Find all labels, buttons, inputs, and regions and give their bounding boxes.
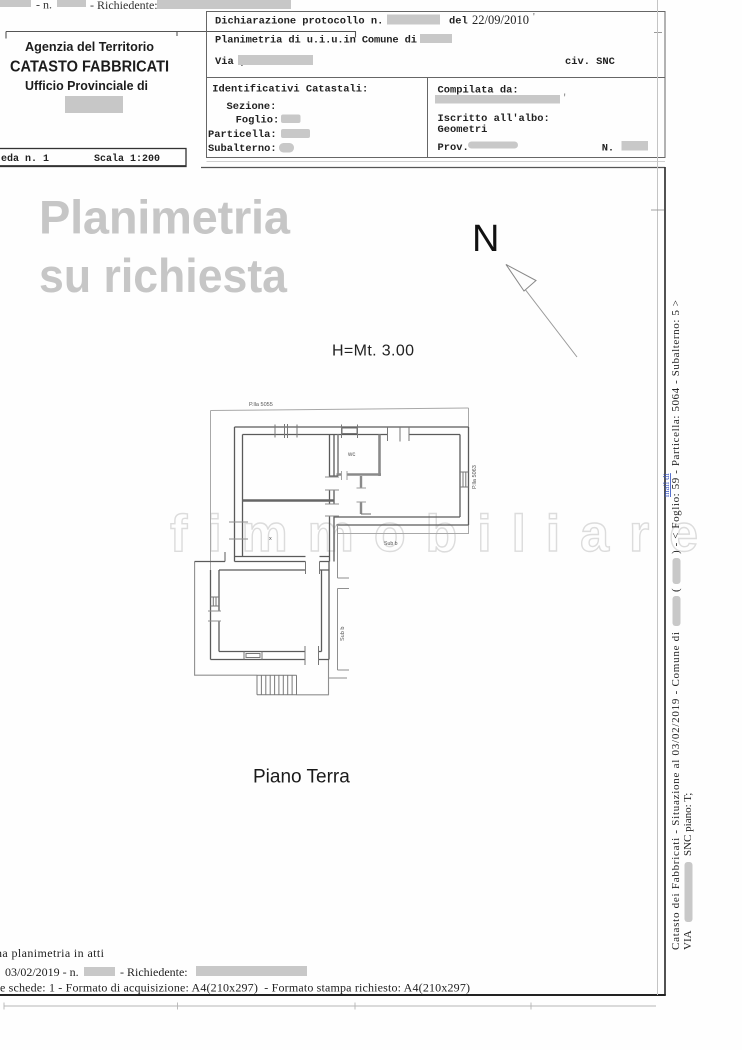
svg-text:mail di: mail di bbox=[661, 473, 671, 497]
svg-text:Dichiarazione protocollo n.: Dichiarazione protocollo n. bbox=[215, 16, 383, 28]
svg-text:x: x bbox=[269, 536, 272, 542]
svg-text:SNC piano: T;: SNC piano: T; bbox=[682, 793, 694, 856]
svg-text:Catasto dei Fabbricati - Situa: Catasto dei Fabbricati - Situazione al 0… bbox=[670, 632, 682, 950]
svg-text:Identificativi Catastali:: Identificativi Catastali: bbox=[212, 84, 368, 96]
svg-text:CATASTO FABBRICATI: CATASTO FABBRICATI bbox=[10, 59, 169, 76]
svg-text:- n.: - n. bbox=[36, 0, 52, 12]
svg-text:- Richiedente:: - Richiedente: bbox=[120, 965, 188, 979]
svg-text:': ' bbox=[533, 12, 535, 23]
svg-text:Compilata da:: Compilata da: bbox=[438, 85, 519, 97]
svg-text:N.: N. bbox=[602, 143, 614, 155]
svg-text:Planimetria di u.i.u.in Comune: Planimetria di u.i.u.in Comune di bbox=[215, 35, 417, 47]
svg-text:) - < Foglio: 59 - Particella:: ) - < Foglio: 59 - Particella: 5064 - Su… bbox=[670, 300, 682, 554]
svg-text:Planimetria: Planimetria bbox=[39, 191, 291, 244]
svg-text:- Richiedente:: - Richiedente: bbox=[90, 0, 158, 12]
svg-text:Piano Terra: Piano Terra bbox=[253, 767, 350, 788]
svg-text:Sezione:: Sezione: bbox=[227, 101, 277, 113]
svg-text:e schede: 1 - Formato di acqui: e schede: 1 - Formato di acquisizione: A… bbox=[0, 981, 470, 995]
svg-text:Subalterno:: Subalterno: bbox=[208, 143, 277, 155]
svg-text:Geometri: Geometri bbox=[438, 124, 488, 136]
svg-text:': ' bbox=[562, 93, 567, 103]
svg-text:Foglio:: Foglio: bbox=[236, 115, 280, 127]
svg-text:na planimetria in atti: na planimetria in atti bbox=[0, 946, 105, 960]
svg-text:Particella:: Particella: bbox=[208, 129, 277, 141]
svg-text:Prov.: Prov. bbox=[438, 142, 469, 154]
svg-text:Scala 1:200: Scala 1:200 bbox=[94, 153, 160, 165]
svg-text:wc: wc bbox=[347, 452, 355, 458]
svg-text:civ. SNC: civ. SNC bbox=[565, 56, 615, 68]
svg-text:H=Mt. 3.00: H=Mt. 3.00 bbox=[332, 343, 414, 360]
svg-text:22/09/2010: 22/09/2010 bbox=[472, 13, 529, 27]
svg-text:del: del bbox=[449, 16, 468, 28]
svg-text:Ufficio Provinciale di: Ufficio Provinciale di bbox=[25, 78, 148, 93]
svg-text:Agenzia del Territorio: Agenzia del Territorio bbox=[25, 39, 154, 54]
svg-text:Sub b: Sub b bbox=[384, 541, 398, 547]
svg-text:su richiesta: su richiesta bbox=[39, 249, 288, 302]
svg-text:eda n. 1: eda n. 1 bbox=[1, 153, 49, 165]
svg-text:Sub b: Sub b bbox=[340, 627, 346, 641]
svg-text:VIA: VIA bbox=[682, 930, 694, 950]
svg-text:P.lla 5055: P.lla 5055 bbox=[249, 402, 273, 408]
svg-text:03/02/2019 - n.: 03/02/2019 - n. bbox=[5, 965, 79, 979]
svg-text:(: ( bbox=[670, 588, 682, 592]
svg-text:N: N bbox=[472, 218, 499, 260]
svg-text:P.lla 5063: P.lla 5063 bbox=[472, 465, 478, 489]
